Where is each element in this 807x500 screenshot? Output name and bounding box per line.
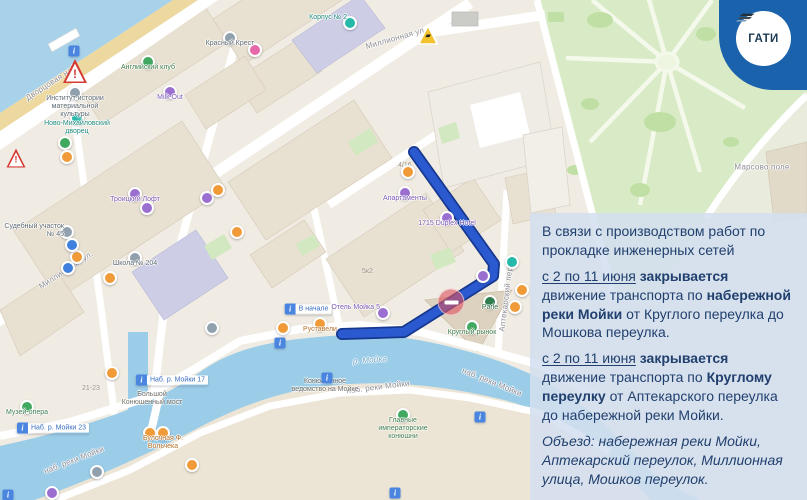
poi-marker[interactable]: Булочная Ф. Вольчека — [156, 426, 170, 440]
notice-paragraph-3: с 2 по 11 июня закрывается движение тран… — [542, 349, 795, 425]
poi-marker[interactable] — [103, 271, 117, 285]
poi-marker[interactable] — [401, 165, 415, 179]
roadworks-sign-icon[interactable]: ▰ — [418, 24, 439, 45]
poi-label: Главные императорские конюшни — [370, 417, 436, 441]
poi-icon[interactable] — [60, 150, 74, 164]
place-label: Большой Конюшенный мост — [115, 391, 189, 407]
poi-icon[interactable] — [103, 271, 117, 285]
info-icon: i — [69, 46, 80, 57]
info-icon: i — [17, 423, 28, 434]
road-stripes-icon — [736, 11, 758, 23]
poi-label: Круглый рынок — [448, 329, 497, 337]
poi-marker[interactable]: Parle — [483, 295, 497, 309]
poi-marker[interactable]: Судебный участок № 45 — [60, 225, 74, 239]
info-badge-text: Наб. р. Мойки 17 — [147, 376, 208, 385]
poi-icon[interactable] — [90, 465, 104, 479]
info-badge[interactable]: i — [390, 488, 401, 499]
poi-marker[interactable]: Музей-опера — [20, 400, 34, 414]
poi-icon[interactable] — [508, 300, 522, 314]
poi-icon[interactable] — [185, 458, 199, 472]
poi-icon[interactable] — [211, 183, 225, 197]
poi-marker[interactable] — [90, 465, 104, 479]
poi-marker[interactable]: Красный Крест — [223, 31, 237, 45]
poi-label: Руставели — [303, 326, 337, 334]
poi-label: Судебный участок № 45 — [0, 223, 64, 239]
worker-glyph: ▰ — [418, 33, 439, 40]
street-label: Марсово поле — [734, 163, 789, 172]
poi-label: 1715 Duplex Hotel — [418, 220, 476, 228]
poi-icon[interactable] — [205, 321, 219, 335]
info-badge-text: Наб. р. Мойки 23 — [28, 424, 89, 433]
info-icon: i — [390, 488, 401, 499]
poi-marker[interactable]: Руставели — [313, 317, 327, 331]
poi-marker[interactable]: Отель Мойка 5 — [376, 306, 390, 320]
poi-icon[interactable] — [58, 136, 72, 150]
poi-icon[interactable] — [505, 255, 519, 269]
notice-paragraph-detour: Объезд: набережная реки Мойки, Аптекарск… — [542, 432, 795, 489]
gati-logo: ГАТИ — [736, 11, 791, 66]
exclamation-glyph: ! — [7, 155, 26, 166]
poi-label: Parle — [482, 304, 498, 312]
poi-icon[interactable] — [61, 261, 75, 275]
info-badge[interactable]: iНаб. р. Мойки 23 — [17, 423, 89, 434]
exclamation-glyph: ! — [63, 67, 87, 81]
gati-logo-text: ГАТИ — [748, 33, 778, 45]
poi-label: Музей-опера — [6, 409, 48, 417]
info-badge[interactable]: iНаб. р. Мойки 17 — [136, 375, 208, 386]
poi-marker[interactable] — [185, 458, 199, 472]
info-icon: i — [475, 412, 486, 423]
warning-sign-icon[interactable]: ! — [7, 149, 26, 168]
info-badge[interactable]: i — [275, 338, 286, 349]
poi-label: Корпус № 2 — [309, 14, 347, 22]
poi-marker[interactable]: Главные императорские конюшни — [396, 408, 410, 422]
warning-sign-icon[interactable]: ! — [63, 59, 87, 83]
poi-label: Красный Крест — [206, 40, 255, 48]
poi-icon[interactable] — [276, 321, 290, 335]
poi-marker[interactable]: Институт истории материальной культуры — [68, 86, 82, 100]
poi-icon[interactable] — [476, 269, 490, 283]
poi-label: Булочная Ф. Вольчека — [130, 435, 196, 451]
map-canvas[interactable]: Дворцовая наб.Миллионная ул.Миллионная у… — [0, 0, 807, 500]
info-icon: i — [275, 338, 286, 349]
poi-label: Milk Out — [157, 94, 183, 102]
poi-marker[interactable]: Английский клуб — [141, 55, 155, 69]
poi-label: Институт истории материальной культуры — [42, 95, 108, 119]
info-badge[interactable]: i — [3, 490, 14, 500]
notice-paragraph-2: с 2 по 11 июня закрывается движение тран… — [542, 267, 795, 343]
info-badge[interactable]: i — [475, 412, 486, 423]
poi-icon[interactable] — [65, 238, 79, 252]
info-icon: i — [3, 490, 14, 500]
poi-marker[interactable] — [60, 150, 74, 164]
poi-marker[interactable] — [61, 261, 75, 275]
info-icon: i — [136, 375, 147, 386]
poi-marker[interactable] — [58, 136, 72, 150]
poi-marker[interactable]: Школа № 204 — [128, 251, 142, 265]
poi-icon[interactable] — [401, 165, 415, 179]
poi-marker[interactable]: Корпус № 2 — [343, 16, 357, 30]
poi-marker[interactable] — [230, 225, 244, 239]
poi-marker[interactable] — [276, 321, 290, 335]
poi-marker[interactable]: Троицкий Лофт — [128, 187, 142, 201]
poi-icon[interactable] — [230, 225, 244, 239]
no-entry-bar — [444, 300, 458, 304]
poi-marker[interactable] — [211, 183, 225, 197]
poi-marker[interactable] — [45, 486, 59, 500]
poi-marker[interactable] — [205, 321, 219, 335]
notice-paragraph-1: В связи с производством работ по проклад… — [542, 222, 795, 260]
poi-marker[interactable] — [505, 255, 519, 269]
poi-marker[interactable] — [508, 300, 522, 314]
poi-label: Апартаменты — [383, 195, 427, 203]
poi-marker[interactable]: 1715 Duplex Hotel — [440, 211, 454, 225]
poi-icon[interactable] — [105, 366, 119, 380]
poi-marker[interactable] — [65, 238, 79, 252]
poi-marker[interactable] — [515, 283, 529, 297]
info-badge[interactable]: iВ начале — [285, 304, 332, 315]
poi-marker[interactable]: Milk Out — [163, 85, 177, 99]
poi-label: Школа № 204 — [113, 260, 157, 268]
poi-icon[interactable] — [45, 486, 59, 500]
info-icon: i — [322, 373, 333, 384]
poi-icon[interactable] — [515, 283, 529, 297]
no-entry-sign-icon[interactable] — [438, 289, 465, 316]
poi-label: Отель Мойка 5 — [331, 304, 380, 312]
notice-panel: В связи с производством работ по проклад… — [530, 213, 807, 500]
info-badge[interactable]: i — [322, 373, 333, 384]
poi-marker[interactable] — [140, 201, 154, 215]
house-number: 5к2 — [362, 268, 373, 275]
poi-icon[interactable] — [140, 201, 154, 215]
info-badge-text: В начале — [296, 305, 332, 314]
poi-label: Английский клуб — [121, 64, 175, 72]
poi-marker[interactable]: Круглый рынок — [465, 320, 479, 334]
poi-marker[interactable]: Апартаменты — [398, 186, 412, 200]
info-icon: i — [285, 304, 296, 315]
info-badge[interactable]: i — [69, 46, 80, 57]
poi-marker[interactable] — [105, 366, 119, 380]
poi-label: Ново-Михайловский дворец — [44, 120, 110, 136]
house-number: 21-23 — [82, 385, 100, 392]
poi-marker[interactable] — [476, 269, 490, 283]
